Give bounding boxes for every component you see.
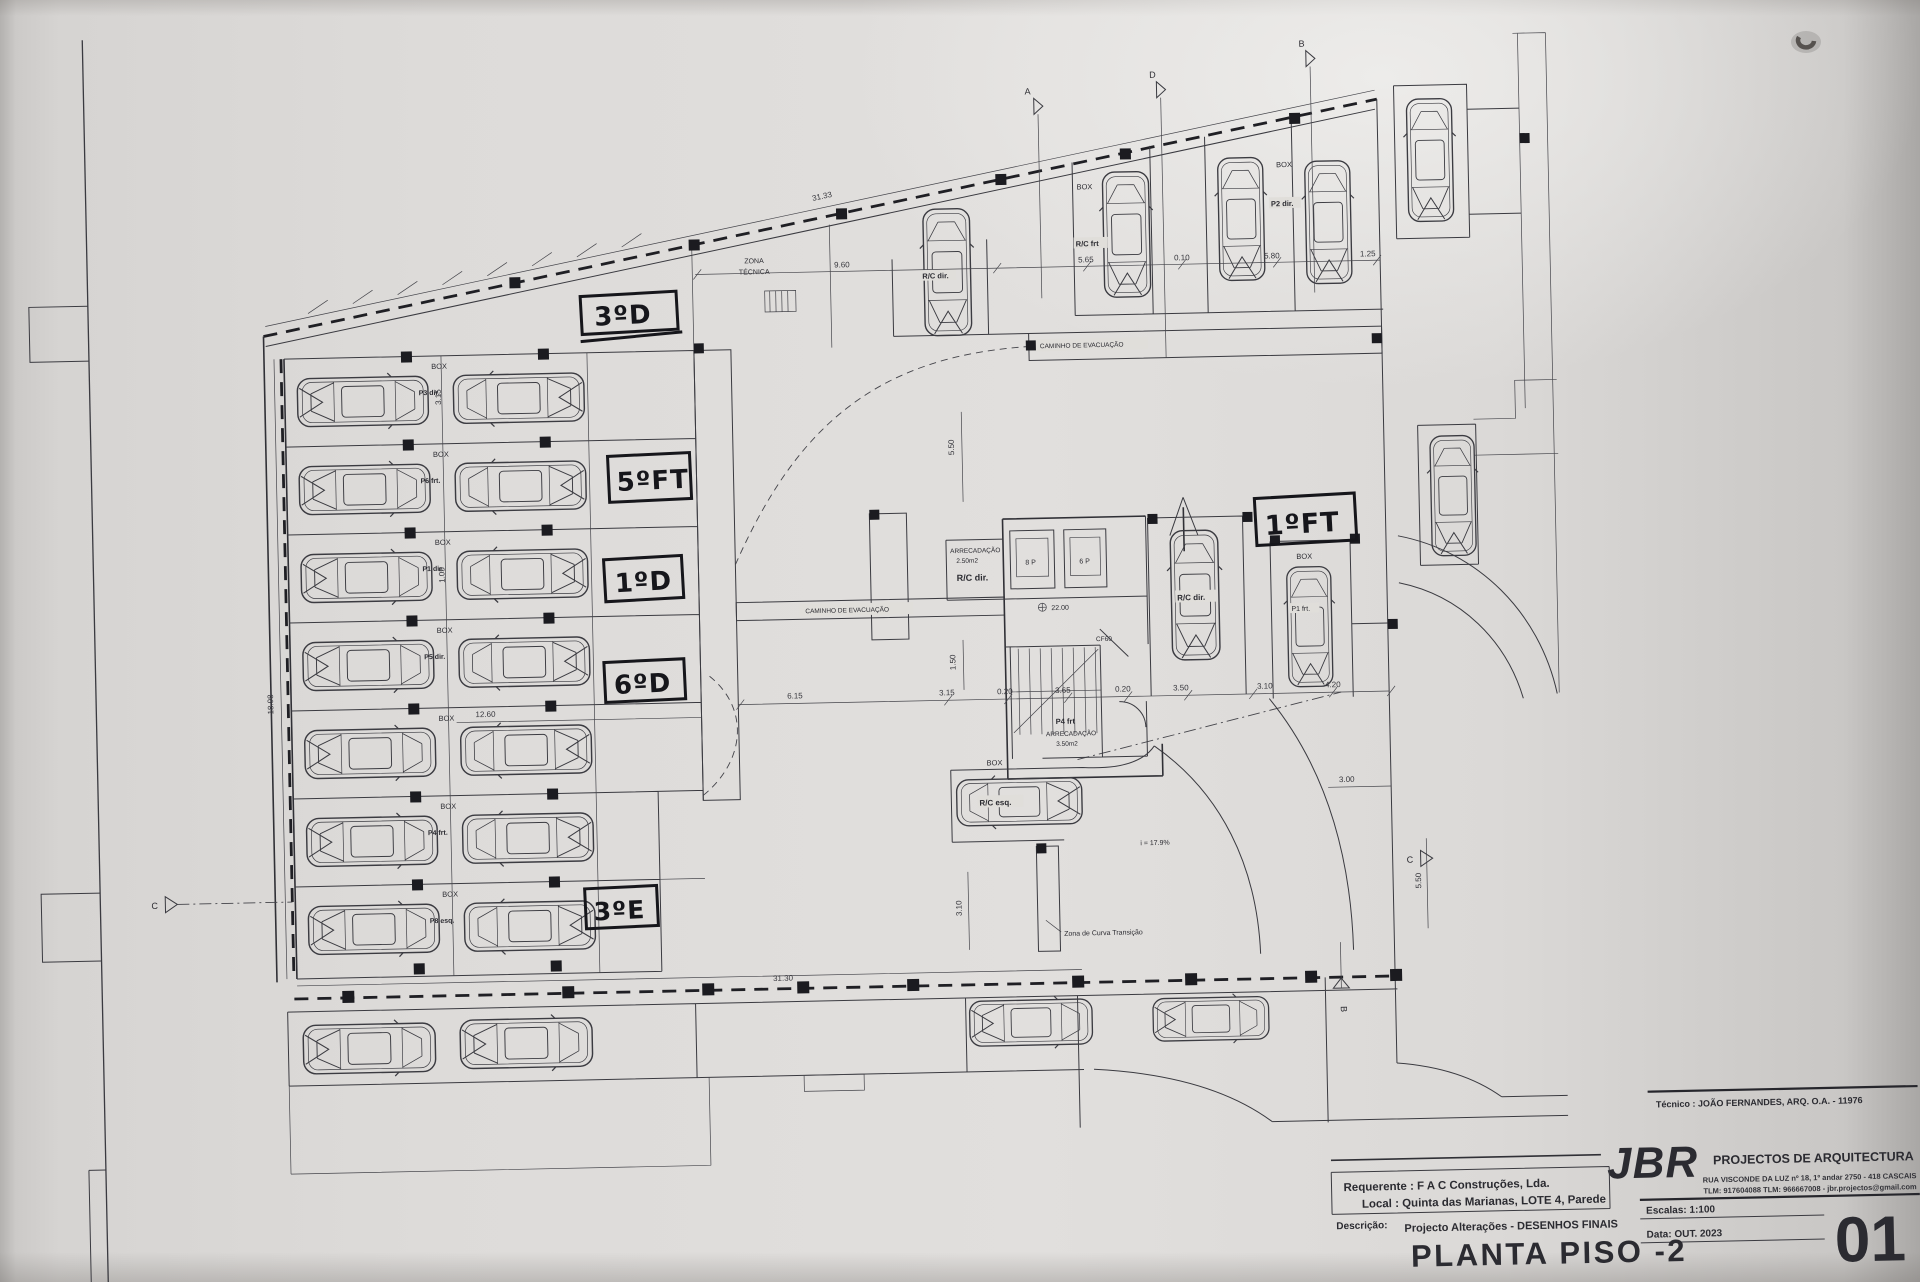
escala-line: Escalas: 1:100: [1646, 1204, 1716, 1216]
rc-frt-label: R/C frt: [1076, 239, 1100, 248]
firm-contacts: TLM: 917604088 TLM: 966667008 - jbr.proj…: [1703, 1182, 1917, 1195]
box-label: BOX: [1276, 160, 1292, 169]
technician-line: Técnico : JOÃO FERNANDES, ARQ. O.A. - 11…: [1656, 1095, 1863, 1109]
car: [464, 897, 596, 955]
door-cf60: CF60: [1096, 636, 1112, 643]
p1-frt-label: P1 frt.: [1291, 606, 1310, 613]
car: [297, 372, 429, 430]
rc-dir-stall-label: R/C dir.: [1177, 593, 1205, 603]
drive-aisle-curves: [694, 336, 1563, 966]
p2-dir-label: P2 dir.: [1271, 199, 1294, 208]
car: [455, 457, 587, 515]
dim: 6.15: [787, 691, 803, 700]
car: [301, 548, 433, 606]
top-parking-stalls: [888, 33, 1560, 707]
firm-name: PROJECTOS DE ARQUITECTURA: [1713, 1149, 1914, 1167]
row-id: P8 esq.: [430, 918, 455, 926]
dim: 3.00: [1339, 775, 1355, 784]
dim: 5.50: [1414, 872, 1423, 888]
scanned-plan-photo: CAMINHO DE EVACUAÇÃO CAMINHO DE EVACUAÇÃ…: [0, 0, 1920, 1282]
dim: 0.10: [1174, 253, 1190, 262]
car: [308, 900, 440, 958]
handwritten-3e: 3ºE: [593, 895, 646, 926]
dim: 1.50: [948, 654, 957, 670]
box-label: BOX: [986, 758, 1002, 767]
car: [453, 369, 585, 427]
dim: 3.10: [1257, 681, 1273, 690]
dim: 3.65: [1055, 686, 1071, 695]
level-22: 22.00: [1051, 605, 1069, 612]
handwritten-5ft: 5ºFT: [616, 465, 690, 498]
dim: 0.20: [997, 687, 1013, 696]
right-side-structures: [1417, 379, 1561, 565]
car: [1426, 435, 1480, 556]
dim: 3.50: [1173, 683, 1189, 692]
dim: 3.10: [954, 900, 963, 916]
handwritten-1ft: 1ºFT: [1264, 507, 1340, 542]
zona-tecnica-line2: TÉCNICA: [739, 267, 770, 277]
rc-dir-top-label: R/C dir.: [922, 271, 948, 281]
corner-hole-mark: [1791, 31, 1821, 53]
car: [460, 1014, 593, 1073]
p4-frt: P4 frt: [1056, 717, 1076, 726]
handwritten-1d: 1ºD: [614, 566, 673, 599]
arrecadacao-lower-area: 3.50m2: [1056, 741, 1078, 748]
lift-6p: 6 P: [1079, 558, 1090, 565]
local-line: Local : Quinta das Marianas, LOTE 4, Par…: [1362, 1194, 1606, 1211]
arrecadacao-lower: ARRECADAÇÃO: [1046, 728, 1096, 738]
core-stairs-lifts: [945, 511, 1390, 780]
dim: 9.60: [834, 260, 850, 269]
box-label: BOX: [1296, 552, 1312, 561]
title-block: Técnico : JOÃO FERNANDES, ARQ. O.A. - 11…: [1330, 1086, 1920, 1282]
row-id: P6 frt.: [420, 478, 440, 485]
car: [299, 460, 431, 518]
drawing-sheet: CAMINHO DE EVACUAÇÃO CAMINHO DE EVACUAÇÃ…: [23, 2, 1920, 1282]
zona-tecnica: ZONA TÉCNICA: [691, 225, 832, 351]
zona-tecnica-line1: ZONA: [744, 258, 764, 265]
marker-c-left: C: [151, 901, 158, 911]
marker-c-right: C: [1407, 855, 1414, 865]
car: [462, 809, 594, 867]
rc-dir-room: R/C dir.: [957, 572, 989, 583]
car: [306, 812, 438, 870]
sheet-number: 01: [1834, 1202, 1907, 1275]
cars: [284, 98, 1490, 1078]
car: [457, 545, 589, 603]
rc-esq-label: R/C esq.: [979, 798, 1011, 808]
dim: 31.33: [811, 190, 833, 203]
box-label: BOX: [437, 626, 453, 635]
ramp-hatch-areas: [694, 326, 1395, 958]
box-label: BOX: [438, 714, 454, 723]
pillar-columns: [324, 108, 1547, 1003]
car: [969, 995, 1092, 1050]
dim: 12.60: [475, 710, 496, 719]
descricao-label: Descrição:: [1336, 1220, 1387, 1232]
box-label: BOX: [442, 890, 458, 899]
box-label: BOX: [433, 450, 449, 459]
section-markers: A D B C C B: [134, 36, 1436, 1037]
sheet-frame: [23, 40, 108, 1282]
bottom-strip: [287, 972, 1568, 1174]
car: [303, 636, 435, 694]
car: [1403, 98, 1458, 221]
car: [1099, 171, 1155, 297]
lift-8p: 8 P: [1025, 559, 1036, 566]
row-id: P4 frt.: [428, 830, 448, 837]
dim: 1.05: [437, 567, 446, 583]
car: [1153, 993, 1270, 1045]
car: [460, 721, 592, 779]
handwritten-6d: 6ºD: [613, 668, 672, 701]
arrecadacao-upper-area: 2.50m2: [956, 558, 978, 565]
car: [1283, 566, 1337, 687]
dim: 3.15: [434, 389, 443, 405]
car: [1301, 160, 1356, 283]
car: [1214, 157, 1269, 280]
dim: 5.50: [947, 439, 956, 455]
dim: 5.65: [1078, 255, 1094, 264]
slope-label: i = 17.9%: [1140, 840, 1170, 848]
rc-esq-stall: [950, 746, 1156, 842]
row-id: P5 dir.: [424, 654, 445, 661]
marker-a: A: [1024, 86, 1030, 96]
handwritten-notes: 3ºD 5ºFT 1ºD 6ºD 3ºE: [572, 277, 1364, 929]
box-label: BOX: [440, 802, 456, 811]
box-label: BOX: [435, 538, 451, 547]
marker-d: D: [1149, 70, 1156, 80]
dim: 4.20: [1325, 680, 1341, 689]
dim: 1.25: [1360, 249, 1376, 258]
marker-b: B: [1298, 39, 1304, 49]
dim: 3.15: [939, 688, 955, 697]
car: [303, 1019, 436, 1078]
dim: 0.20: [1115, 684, 1131, 693]
descricao-value: Projecto Alterações - DESENHOS FINAIS: [1404, 1218, 1618, 1234]
box-label: BOX: [1076, 182, 1092, 191]
box-label: BOX: [431, 362, 447, 371]
requerente-line: Requerente : F A C Construções, Lda.: [1343, 1178, 1549, 1194]
dim: 5.80: [1264, 251, 1280, 260]
car: [459, 633, 591, 691]
plan-svg: CAMINHO DE EVACUAÇÃO CAMINHO DE EVACUAÇÃ…: [0, 0, 1920, 1282]
firm-initials: JBR: [1607, 1138, 1699, 1189]
car: [304, 724, 436, 782]
marker-b-bottom: B: [1339, 1006, 1349, 1012]
handwritten-3d: 3ºD: [593, 300, 652, 333]
arrecadacao-upper: ARRECADAÇÃO: [950, 545, 1000, 555]
zona-curva-label: Zona de Curva Transição: [1064, 929, 1143, 938]
drawing-title: PLANTA PISO -2: [1411, 1233, 1688, 1274]
dim: 31.30: [773, 974, 794, 983]
dim: 18.98: [266, 694, 275, 715]
